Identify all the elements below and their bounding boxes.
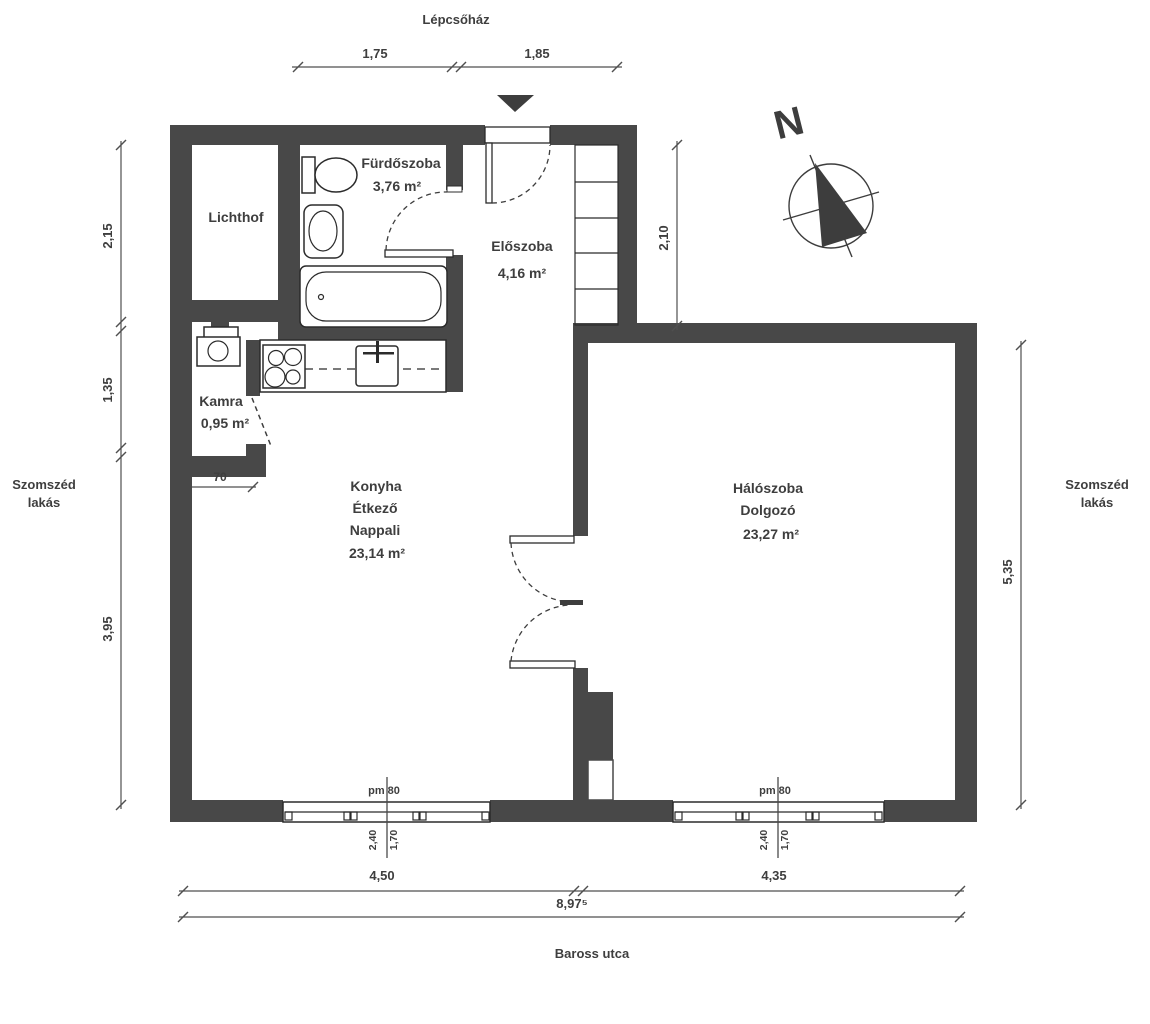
room-haloszoba-area: 23,27 m²: [743, 526, 799, 542]
dim-70: 70: [213, 470, 227, 484]
compass: N: [770, 99, 879, 257]
kamra-door-leaf: [252, 398, 271, 446]
window-width-label: 2,40: [367, 830, 379, 851]
dimension-top: 1,75 1,85: [292, 46, 622, 72]
label-lepcsohaz: Lépcsőház: [422, 12, 490, 27]
dimension-right-bedroom: 5,35: [1000, 340, 1026, 810]
window-living: pm 80 2,40 1,70: [283, 777, 490, 858]
dim-175: 1,75: [362, 46, 387, 61]
wall-bath-right-upper: [446, 145, 463, 190]
closet-outline: [575, 145, 618, 325]
dimension-bottom: 4,50 4,35 8,97⁵: [178, 868, 965, 922]
dim-210: 2,10: [656, 225, 671, 250]
room-kamra-area: 0,95 m²: [201, 415, 250, 431]
bath-door-swing: [386, 192, 447, 250]
bath-door-leaf: [385, 250, 453, 257]
wall-middle-lower: [573, 668, 588, 800]
closet: [575, 145, 618, 325]
dim-395: 3,95: [100, 616, 115, 641]
double-door-meeting-stop: [560, 600, 583, 605]
dimension-left: 2,15 1,35 3,95: [100, 140, 126, 810]
label-szomszed-left-2: lakás: [28, 495, 61, 510]
wall-bottom-1: [170, 800, 283, 822]
wall-right: [955, 323, 977, 822]
north-label: N: [770, 99, 809, 149]
floor-plan-drawing: pm 80 2,40 1,70 pm 80 2,40 1,70 1,75 1,8…: [0, 0, 1150, 1024]
entrance-door-swing: [492, 145, 550, 203]
dim-185: 1,85: [524, 46, 549, 61]
room-lichthof: Lichthof: [208, 209, 264, 225]
room-nappali-area: 23,14 m²: [349, 545, 405, 561]
bathtub: [300, 266, 447, 327]
room-nappali-2: Étkező: [352, 500, 397, 516]
double-door-swing-bottom: [511, 605, 570, 661]
dim-535: 5,35: [1000, 559, 1015, 584]
room-eloszoba-area: 4,16 m²: [498, 265, 547, 281]
double-door-leaf-bottom: [510, 661, 575, 668]
wall-bottom-2: [490, 800, 673, 822]
window-sill-label: pm 80: [368, 785, 400, 797]
wall-top-left: [170, 125, 485, 145]
wall-kamra-right-upper: [246, 340, 260, 396]
dim-435: 4,35: [761, 868, 786, 883]
label-szomszed-right-1: Szomszéd: [1065, 477, 1129, 492]
room-eloszoba: Előszoba: [491, 238, 553, 254]
room-nappali-1: Konyha: [350, 478, 402, 494]
toilet-bowl: [315, 158, 357, 192]
dim-215: 2,15: [100, 223, 115, 248]
window-height-label: 1,70: [388, 830, 400, 851]
dim-450: 4,50: [369, 868, 394, 883]
wall-middle-upper: [573, 343, 588, 536]
floor-plan: pm 80 2,40 1,70 pm 80 2,40 1,70 1,75 1,8…: [0, 0, 1150, 1024]
bath-door-jamb: [447, 186, 462, 192]
room-kamra: Kamra: [199, 393, 243, 409]
flue-niche: [588, 760, 613, 800]
dim-total: 8,97⁵: [556, 896, 587, 911]
room-haloszoba-1: Hálószoba: [733, 480, 803, 496]
label-baross-utca: Baross utca: [555, 946, 630, 961]
window-width-label: 2,40: [758, 830, 770, 851]
room-furdoszoba: Fürdőszoba: [361, 155, 441, 171]
double-door-swing-top: [511, 543, 570, 602]
room-haloszoba-2: Dolgozó: [740, 502, 795, 518]
faucet-bar: [363, 352, 394, 355]
window-sill-label: pm 80: [759, 785, 791, 797]
room-nappali-3: Nappali: [350, 522, 401, 538]
entrance-door-leaf: [486, 143, 492, 203]
room-furdoszoba-area: 3,76 m²: [373, 178, 422, 194]
wall-lichthof-right: [278, 145, 300, 322]
wall-hall-right: [618, 125, 637, 343]
flue-block: [587, 692, 613, 760]
double-door-leaf-top: [510, 536, 574, 543]
entrance-marker-triangle: [497, 95, 534, 112]
dim-135: 1,35: [100, 377, 115, 402]
wall-kamra-right-lower: [246, 444, 266, 458]
label-szomszed-left-1: Szomszéd: [12, 477, 76, 492]
window-height-label: 1,70: [779, 830, 791, 851]
entrance-door-slab: [485, 127, 550, 143]
toilet-tank: [302, 157, 315, 193]
wall-lichthof-bottom: [170, 300, 300, 322]
dimension-right-hall: 2,10: [656, 140, 682, 331]
window-bedroom: pm 80 2,40 1,70: [673, 777, 884, 858]
label-szomszed-right-2: lakás: [1081, 495, 1114, 510]
